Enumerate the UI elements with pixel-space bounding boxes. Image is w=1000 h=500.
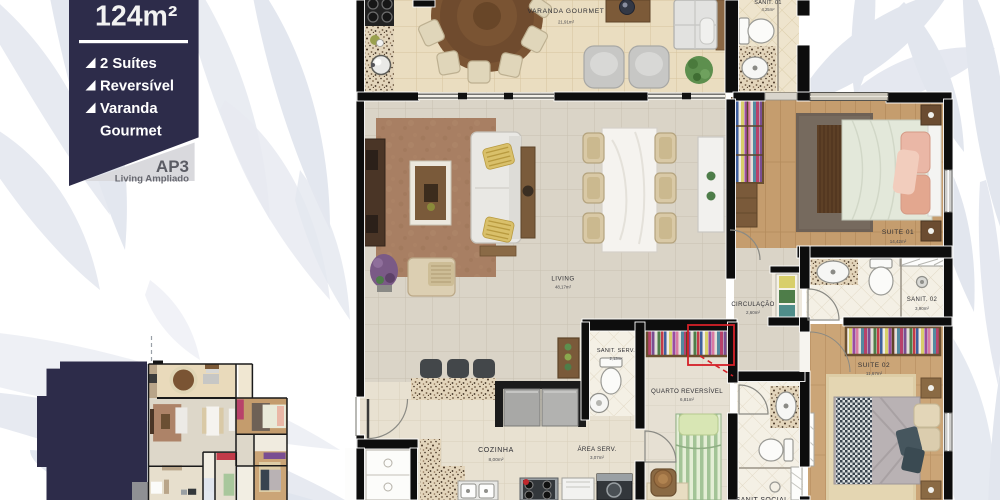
svg-text:2,13m²: 2,13m² xyxy=(609,356,623,361)
svg-text:QUARTO REVERSÍVEL: QUARTO REVERSÍVEL xyxy=(651,388,723,395)
svg-text:SUITE 01: SUITE 01 xyxy=(882,229,914,236)
svg-text:48,17m²: 48,17m² xyxy=(555,285,572,290)
svg-text:2,60m²: 2,60m² xyxy=(746,310,761,315)
svg-text:14,42m²: 14,42m² xyxy=(890,239,907,244)
svg-text:ÁREA SERV.: ÁREA SERV. xyxy=(577,446,616,453)
svg-text:LIVING: LIVING xyxy=(551,276,574,283)
svg-text:11,67m²: 11,67m² xyxy=(866,371,883,376)
svg-text:VARANDA GOURMET: VARANDA GOURMET xyxy=(527,8,604,15)
svg-text:SANIT. 02: SANIT. 02 xyxy=(907,297,938,303)
svg-text:6,81m²: 6,81m² xyxy=(680,397,695,402)
svg-text:3,90m²: 3,90m² xyxy=(915,306,930,311)
svg-text:SANIT. SERV.: SANIT. SERV. xyxy=(597,348,635,354)
svg-text:COZINHA: COZINHA xyxy=(478,447,514,454)
svg-text:SUITE 02: SUITE 02 xyxy=(858,362,890,369)
svg-text:SANIT. 01: SANIT. 01 xyxy=(754,0,781,6)
svg-text:4,25m²: 4,25m² xyxy=(761,7,775,12)
svg-text:3,07m²: 3,07m² xyxy=(590,455,605,460)
svg-text:21,91m²: 21,91m² xyxy=(558,20,575,25)
svg-text:CIRCULAÇÃO: CIRCULAÇÃO xyxy=(731,301,774,308)
svg-text:8,00m²: 8,00m² xyxy=(489,457,504,463)
